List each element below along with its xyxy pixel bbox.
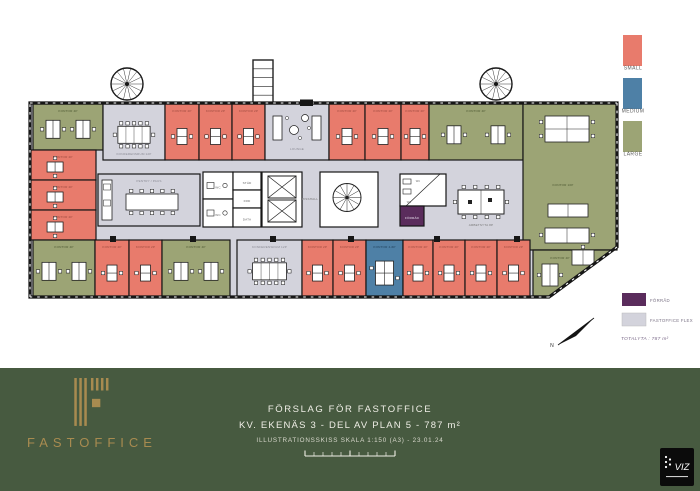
room-label: KONTOR 4-6P [373, 245, 395, 249]
chair [198, 270, 201, 273]
legend-label: FÖRRÅD [650, 298, 670, 303]
table [290, 126, 299, 135]
chair [539, 134, 542, 137]
room-wc: WC [203, 172, 233, 199]
title-block: FÖRSLAG FÖR FASTOFFICE KV. EKENÄS 3 - DE… [175, 404, 525, 465]
chair [591, 120, 594, 123]
chair [140, 211, 143, 214]
column [434, 236, 440, 242]
room-label: KONTOR 2P [206, 109, 225, 113]
north-label: N [550, 343, 554, 349]
chair [62, 128, 65, 131]
chair [497, 185, 500, 188]
chair [474, 215, 477, 218]
legend-label: FASTOFFICE FLEX [650, 318, 693, 323]
room-label: WC [215, 186, 221, 190]
chair [354, 135, 357, 138]
chair [288, 270, 291, 273]
chair [140, 189, 143, 192]
room-konferensrum-12p: KONFERENSRUM 12P [237, 240, 302, 297]
fastoffice-monogram-icon [73, 378, 111, 428]
label: WC [407, 200, 412, 204]
chair [161, 211, 164, 214]
chair [281, 258, 284, 261]
legend-label: MEDIUM [622, 109, 645, 115]
chair [126, 145, 129, 148]
chair [254, 258, 257, 261]
chair [485, 133, 488, 136]
chair [505, 200, 508, 203]
room-label: KONTOR 2P [408, 245, 427, 249]
desk [312, 116, 321, 140]
chair [497, 215, 500, 218]
room-label: KONTOR 2P [439, 245, 458, 249]
chair [189, 135, 192, 138]
room-label: KONTOR 2P [102, 245, 121, 249]
arbetsyta [453, 185, 508, 218]
chair [254, 281, 257, 284]
chair [390, 135, 393, 138]
room-kontor-4p: KONTOR 4P [533, 245, 614, 296]
chair [462, 185, 465, 188]
chair [474, 185, 477, 188]
chair [537, 273, 540, 276]
chair [370, 266, 373, 269]
legend: SMALLMEDIUMLARGEFÖRRÅDFASTOFFICE FLEXTOT… [621, 35, 693, 342]
chair [539, 233, 542, 236]
chair [171, 211, 174, 214]
project-subtitle: KV. EKENÄS 3 - DEL AV PLAN 5 - 787 m² [175, 420, 525, 431]
column [110, 236, 116, 242]
stair-core [494, 82, 498, 86]
room-label: KONTOR 4P [54, 245, 73, 249]
room-kontor-4-6p: KONTOR 4-6P [366, 240, 403, 297]
viz-logo-icon: VIZ [660, 448, 694, 486]
room-kontor-2p: KONTOR 2P [232, 104, 265, 160]
chair [441, 133, 444, 136]
chair [113, 133, 116, 136]
chair [58, 270, 61, 273]
chair [130, 211, 133, 214]
legend-swatch-forrad [622, 293, 646, 306]
viz-logo: VIZ [660, 448, 694, 486]
room-kontor-10p: KONTOR 10P [523, 104, 617, 250]
chair [591, 233, 594, 236]
room-kontor-2p: KONTOR 2P [30, 210, 96, 240]
floor-plan-svg: KONTOR 4PKONFERENSRUM 12PKONTOR 2PKONTOR… [0, 0, 700, 368]
room-label: KONTOR 2P [504, 245, 523, 249]
stool [285, 116, 288, 119]
room-label: FÖRRÅD [405, 215, 420, 220]
chair [275, 258, 278, 261]
chair [281, 281, 284, 284]
chair [404, 135, 407, 138]
room-kontor-2p: KONTOR 2P [95, 240, 129, 297]
brand-name: FASTOFFICE [18, 435, 166, 450]
chair [130, 189, 133, 192]
chair [422, 135, 425, 138]
desk [207, 183, 214, 189]
column [270, 236, 276, 242]
chair [339, 271, 342, 274]
chair [53, 204, 56, 207]
chair [462, 215, 465, 218]
chair [145, 122, 148, 125]
room-kontor-2p: KONTOR 2P [30, 180, 96, 210]
chair [126, 122, 129, 125]
room-kontor-4p: KONTOR 4P [33, 104, 103, 150]
room-label: KONTOR 10P [552, 183, 573, 187]
chair [539, 120, 542, 123]
desk [273, 116, 282, 140]
room-label: KONTOR 2P [53, 155, 72, 159]
chair [581, 245, 584, 248]
chair [248, 270, 251, 273]
legend-label: LARGE [624, 152, 643, 158]
room-label: KONTOR 2P [53, 215, 72, 219]
room-lounge: LOUNGE [265, 104, 329, 160]
room [262, 172, 302, 227]
room-kontor-2p: KONTOR 2P [199, 104, 232, 160]
chair [168, 270, 171, 273]
shaft [253, 60, 273, 104]
room-kontor-2p: KONTOR 2P [329, 104, 365, 160]
chair [503, 271, 506, 274]
chair [591, 134, 594, 137]
chair [261, 258, 264, 261]
room-kontor-2p: KONTOR 2P [497, 240, 530, 297]
room-label: DATA [243, 218, 252, 222]
room-label: KONTOR 2P [308, 245, 327, 249]
room-frd: FRD [233, 190, 261, 208]
chair [153, 271, 156, 274]
north-arrow: N [550, 318, 594, 349]
desk [126, 194, 178, 210]
column [348, 236, 354, 242]
chair [135, 271, 138, 274]
room-kontor-2p: KONTOR 2P [401, 104, 429, 160]
chair [190, 270, 193, 273]
desk [403, 179, 411, 184]
viz-logo-text: VIZ [675, 462, 691, 473]
chair [70, 128, 73, 131]
area-label: ARBETSYTA 8P [469, 223, 493, 227]
chair [151, 133, 154, 136]
accessory [468, 200, 472, 204]
room-kontor-2p: KONTOR 2P [165, 104, 199, 160]
entrance-marker [300, 100, 313, 107]
chair [161, 189, 164, 192]
chair [132, 145, 135, 148]
spiral-stair-exterior [111, 68, 143, 100]
column [190, 236, 196, 242]
chair [220, 270, 223, 273]
sink [223, 211, 227, 215]
chair [66, 270, 69, 273]
room-label: KONTOR 2P [340, 245, 359, 249]
scale-bar [302, 449, 398, 460]
stool [307, 126, 310, 129]
desk [207, 210, 214, 216]
room-label: KONTOR 2P [53, 185, 72, 189]
room-kontor-2p: KONTOR 2P [465, 240, 497, 297]
chair [238, 135, 241, 138]
room-wc: WC [203, 199, 233, 227]
room: WCWC [400, 174, 446, 206]
chair [325, 271, 328, 274]
room-label: FRD [244, 199, 251, 203]
chair [150, 189, 153, 192]
chair [92, 128, 95, 131]
room-kontor-2p: KONTOR 2P [302, 240, 333, 297]
chair [507, 133, 510, 136]
project-scale-note: ILLUSTRATIONSSKISS SKALA 1:150 (A3) - 23… [175, 437, 525, 444]
legend-label: SMALL [624, 66, 642, 72]
chair [470, 271, 473, 274]
chair [53, 234, 56, 237]
chair [256, 135, 259, 138]
chair [268, 258, 271, 261]
room-label: KONTOR 4P [550, 256, 569, 260]
room-label: KONFERENSRUM 12P [252, 245, 287, 249]
chair [453, 200, 456, 203]
desk [104, 200, 111, 206]
accessory [488, 198, 492, 202]
room-label: KONTOR 2P [136, 245, 155, 249]
chair [205, 135, 208, 138]
chair [101, 271, 104, 274]
room-label: PENTRY / PAUS [136, 179, 161, 183]
room-label: KONTOR 2P [337, 109, 356, 113]
sink [223, 183, 227, 187]
room-kontor-4p: KONTOR 4P [429, 104, 523, 160]
desk [403, 189, 411, 194]
room-kontor-4p: KONTOR 4P [33, 240, 95, 297]
area-label: HISSHALL [302, 197, 318, 201]
room-label: KONTOR 4P [466, 109, 485, 113]
chair [485, 185, 488, 188]
room-kontor-2p: KONTOR 2P [403, 240, 433, 297]
chair [438, 271, 441, 274]
room-kontor-2p: KONTOR 2P [433, 240, 465, 297]
legend-swatch-flex [622, 313, 646, 326]
room-kontor-2p: KONTOR 2P [333, 240, 366, 297]
chair [132, 122, 135, 125]
chair [53, 174, 56, 177]
desk [104, 184, 111, 190]
chair [261, 281, 264, 284]
room-kontor-2p: KONTOR 2P [365, 104, 401, 160]
north-tail [558, 318, 594, 345]
chair [407, 271, 410, 274]
room-kontor-2p: KONTOR 2P [30, 150, 96, 180]
footer-bar: FASTOFFICE FÖRSLAG FÖR FASTOFFICE KV. EK… [0, 368, 700, 491]
chair [223, 135, 226, 138]
room-label: LOUNGE [290, 147, 304, 151]
room-kontor-2p: KONTOR 2P [129, 240, 162, 297]
chair [150, 211, 153, 214]
room-label: KONTOR 2P [373, 109, 392, 113]
table [302, 115, 309, 122]
chair [425, 271, 428, 274]
legend-swatch-large [623, 121, 642, 152]
chair [488, 271, 491, 274]
chair [40, 128, 43, 131]
chair [145, 145, 148, 148]
fastoffice-logo: FASTOFFICE [18, 378, 166, 450]
external-shaft [253, 60, 273, 104]
room-f-rr-d: FÖRRÅD [400, 206, 424, 226]
room-label: WC [215, 213, 221, 217]
room-label: KONTOR 2P [239, 109, 258, 113]
chair [307, 271, 310, 274]
room-st-d: STÄD [233, 172, 261, 190]
stair-core [345, 196, 349, 200]
chair [88, 270, 91, 273]
stool [298, 136, 301, 139]
room-data: DATA [233, 208, 261, 227]
chair [463, 133, 466, 136]
chair [139, 122, 142, 125]
room-label: KONTOR 4P [186, 245, 205, 249]
chair [36, 270, 39, 273]
stair-core [125, 82, 129, 86]
chair [171, 135, 174, 138]
chair [485, 215, 488, 218]
room-label: KONTOR 2P [405, 109, 424, 113]
chair [119, 122, 122, 125]
label: WC [416, 179, 421, 183]
chair [171, 189, 174, 192]
legend-swatch-small [623, 35, 642, 66]
chair [396, 276, 399, 279]
chair [521, 271, 524, 274]
room-pentry-paus: PENTRY / PAUS [98, 174, 200, 226]
chair [119, 145, 122, 148]
room-label: KONTOR 4P [58, 109, 77, 113]
chair [139, 145, 142, 148]
room-kontor-4p: KONTOR 4P [162, 240, 230, 297]
room-label: STÄD [243, 181, 252, 185]
column [514, 236, 520, 242]
chair [357, 271, 360, 274]
chair [119, 271, 122, 274]
room [320, 172, 378, 227]
room-label: KONTOR 2P [172, 109, 191, 113]
spiral-stair-exterior [480, 68, 512, 100]
chair [559, 273, 562, 276]
chair [275, 281, 278, 284]
chair [336, 135, 339, 138]
legend-total: TOTALYTA : 787 m² [621, 336, 668, 342]
drawing-sheet: KONTOR 4PKONFERENSRUM 12PKONTOR 2PKONTOR… [0, 0, 700, 491]
room-label: KONTOR 2P [471, 245, 490, 249]
project-title: FÖRSLAG FÖR FASTOFFICE [175, 404, 525, 415]
chair [372, 135, 375, 138]
chair [268, 281, 271, 284]
room-konferensrum-12p: KONFERENSRUM 12P [103, 104, 165, 160]
room-label: KONFERENSRUM 12P [116, 152, 151, 156]
chair [456, 271, 459, 274]
legend-swatch-medium [623, 78, 642, 109]
